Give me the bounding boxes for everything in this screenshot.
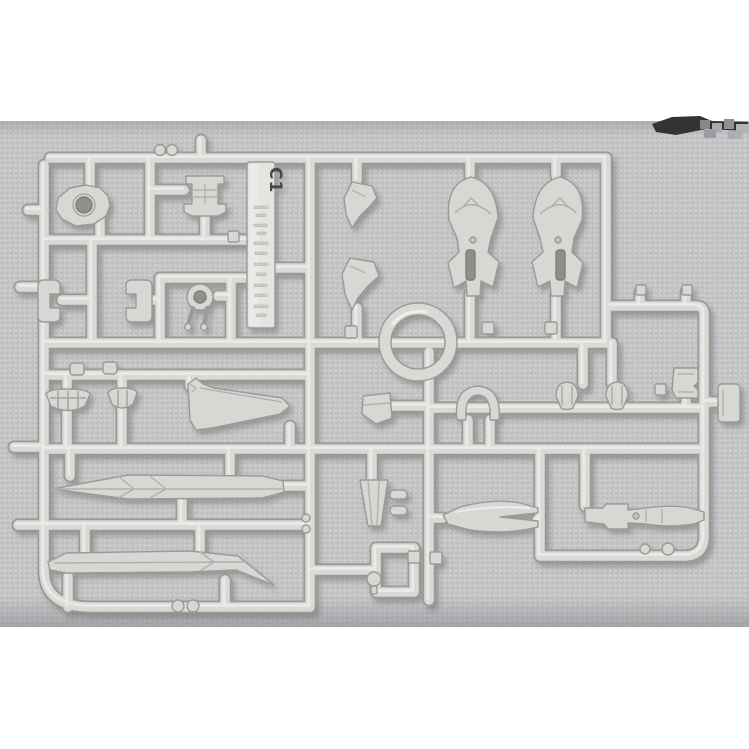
photo-canvas: C1 [0, 0, 749, 749]
shin-armor-left [448, 177, 499, 296]
box-detail-part [672, 368, 698, 398]
bottom-margin [0, 627, 749, 749]
sole-vent-right [108, 388, 137, 408]
outer-clip-part [718, 384, 740, 422]
shield-shell-left [556, 382, 578, 410]
shin-armor-right [532, 177, 583, 296]
shield-shell-right [606, 382, 628, 410]
tag-label: C1 [265, 167, 285, 193]
top-margin [0, 0, 749, 121]
product-photo: C1 [0, 0, 749, 749]
